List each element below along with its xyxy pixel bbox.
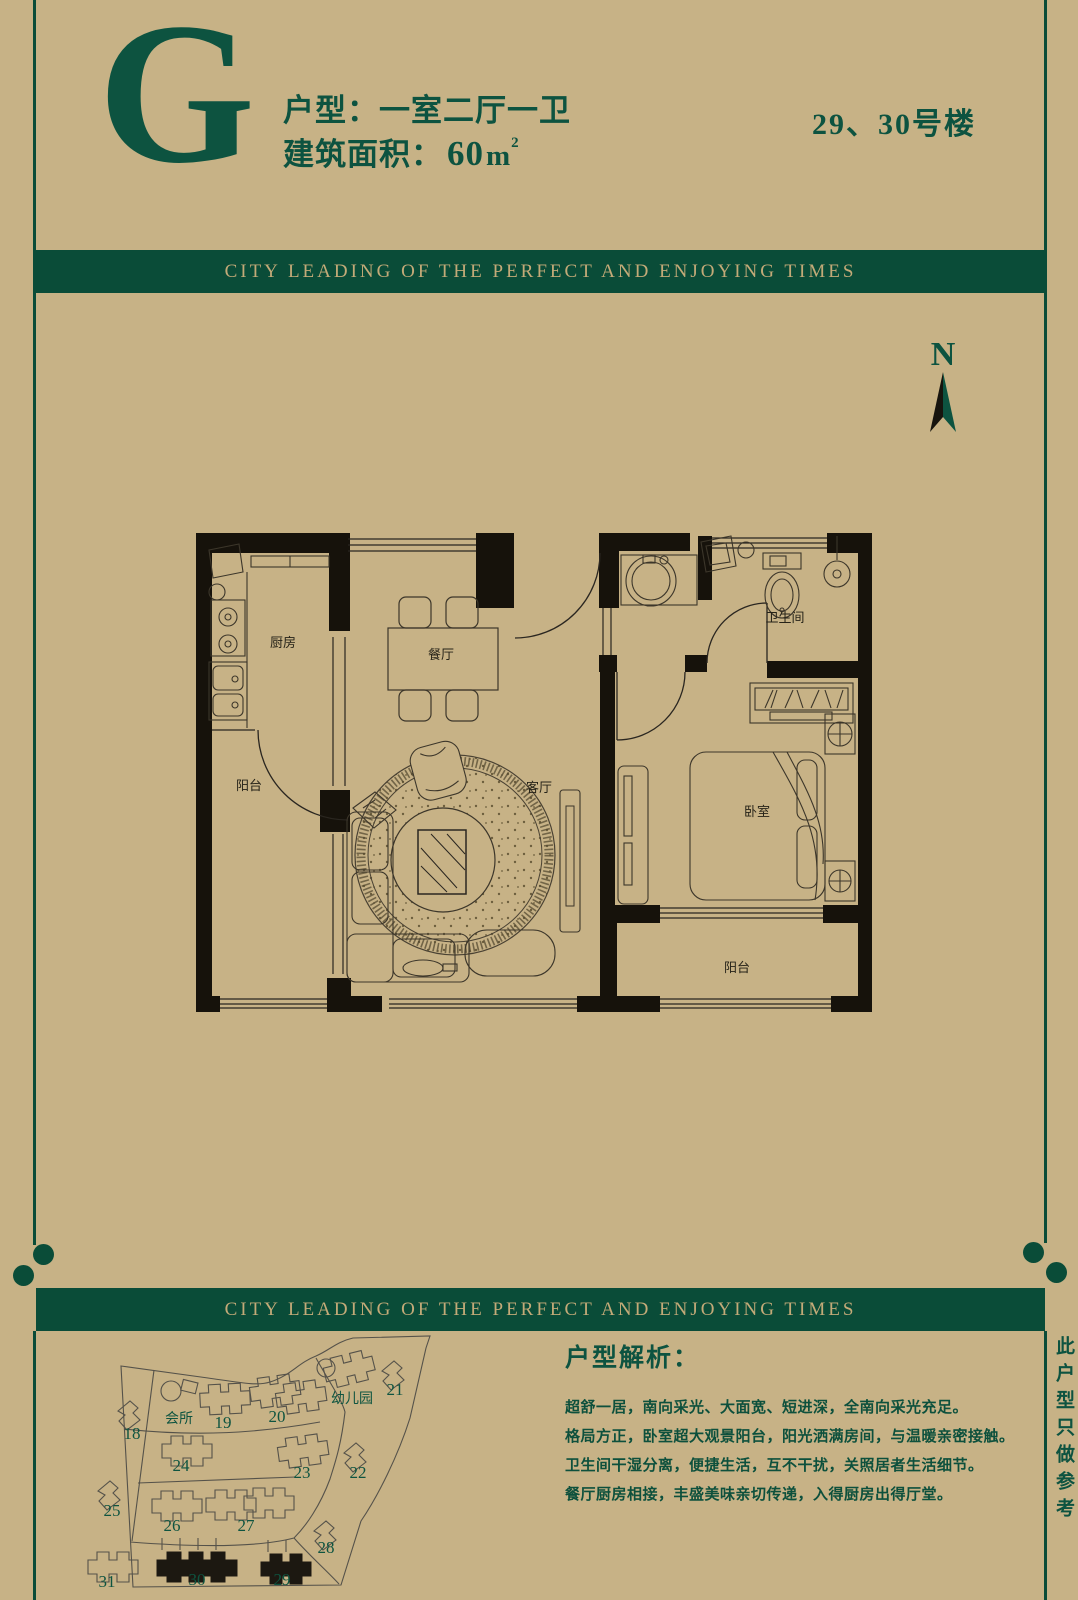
room-label-bedroom: 卧室 xyxy=(744,804,770,819)
frame-line-right-bottom xyxy=(1044,1331,1047,1600)
map-building-28: 28 xyxy=(318,1538,335,1557)
map-building-25: 25 xyxy=(104,1501,121,1520)
compass-needle-left xyxy=(930,372,943,432)
top-banner: CITY LEADING OF THE PERFECT AND ENJOYING… xyxy=(36,250,1045,293)
frame-line-left-top xyxy=(33,0,36,1245)
map-label-clubhouse: 会所 xyxy=(165,1411,193,1427)
map-building-31: 31 xyxy=(99,1572,116,1591)
room-label-kitchen: 厨房 xyxy=(270,635,296,650)
analysis-line: 超舒一居，南向采光、大面宽、短进深，全南向采光充足。 xyxy=(565,1394,995,1423)
room-label-living: 客厅 xyxy=(526,780,552,795)
area-label: 建筑面积： xyxy=(283,137,443,172)
compass-n-label: N xyxy=(931,336,956,373)
side-note: 此户型只做参考 xyxy=(1050,1336,1077,1566)
map-building-23: 23 xyxy=(294,1463,311,1482)
analysis-heading: 户型解析： xyxy=(565,1338,995,1374)
map-building-27: 27 xyxy=(238,1516,256,1535)
walls xyxy=(196,533,872,1012)
windows xyxy=(212,538,831,1008)
floor-plan: 厨房 餐厅 阳台 客厅 卫生间 卧室 阳台 xyxy=(185,498,880,1018)
map-building-24: 24 xyxy=(173,1456,191,1475)
analysis-line: 餐厅厨房相接，丰盛美味亲切传递，入得厨房出得厅堂。 xyxy=(565,1481,995,1510)
area-exponent: 2 xyxy=(511,135,520,151)
map-building-29: 29 xyxy=(274,1570,291,1589)
map-building-30: 30 xyxy=(189,1570,206,1589)
corner-dot xyxy=(33,1244,54,1265)
map-label-kindergarten: 幼儿园 xyxy=(331,1391,373,1407)
area-value: 60 xyxy=(443,134,484,173)
map-building-20: 20 xyxy=(269,1407,286,1426)
analysis-line: 卫生间干湿分离，便捷生活，互不干扰，关照居者生活细节。 xyxy=(565,1452,995,1481)
unit-type-text: 户型：一室二厅一卫 xyxy=(283,85,571,130)
map-building-19: 19 xyxy=(215,1413,232,1432)
room-label-dining: 餐厅 xyxy=(428,647,454,662)
frame-line-left-bottom xyxy=(33,1331,36,1600)
bedroom-furniture xyxy=(618,683,855,904)
area-unit: m xyxy=(484,140,511,172)
site-map: 会所 幼儿园 18 19 20 21 22 23 24 25 26 27 28 … xyxy=(58,1316,443,1600)
map-building-26: 26 xyxy=(164,1516,181,1535)
map-building-21: 21 xyxy=(387,1380,404,1399)
unit-analysis: 户型解析： 超舒一居，南向采光、大面宽、短进深，全南向采光充足。 格局方正，卧室… xyxy=(565,1338,995,1510)
unit-letter: G xyxy=(98,0,255,194)
building-number: 29、30号楼 xyxy=(812,99,976,143)
room-label-kitchen-balcony: 阳台 xyxy=(236,778,262,793)
living-furniture xyxy=(347,738,580,982)
corner-dot xyxy=(1023,1242,1044,1263)
corner-dot xyxy=(1046,1262,1067,1283)
site-map-roads xyxy=(121,1336,430,1587)
north-compass: N xyxy=(905,332,975,440)
map-building-18: 18 xyxy=(124,1424,141,1443)
room-label-bedroom-balcony: 阳台 xyxy=(724,960,750,975)
area-text: 建筑面积：60m2 xyxy=(283,129,520,174)
room-label-bathroom: 卫生间 xyxy=(765,610,804,625)
frame-line-right-top xyxy=(1044,0,1047,1243)
map-building-22: 22 xyxy=(350,1463,367,1482)
analysis-line: 格局方正，卧室超大观景阳台，阳光洒满房间，与温暖亲密接触。 xyxy=(565,1423,995,1452)
corner-dot xyxy=(13,1265,34,1286)
compass-needle-right xyxy=(943,372,956,432)
